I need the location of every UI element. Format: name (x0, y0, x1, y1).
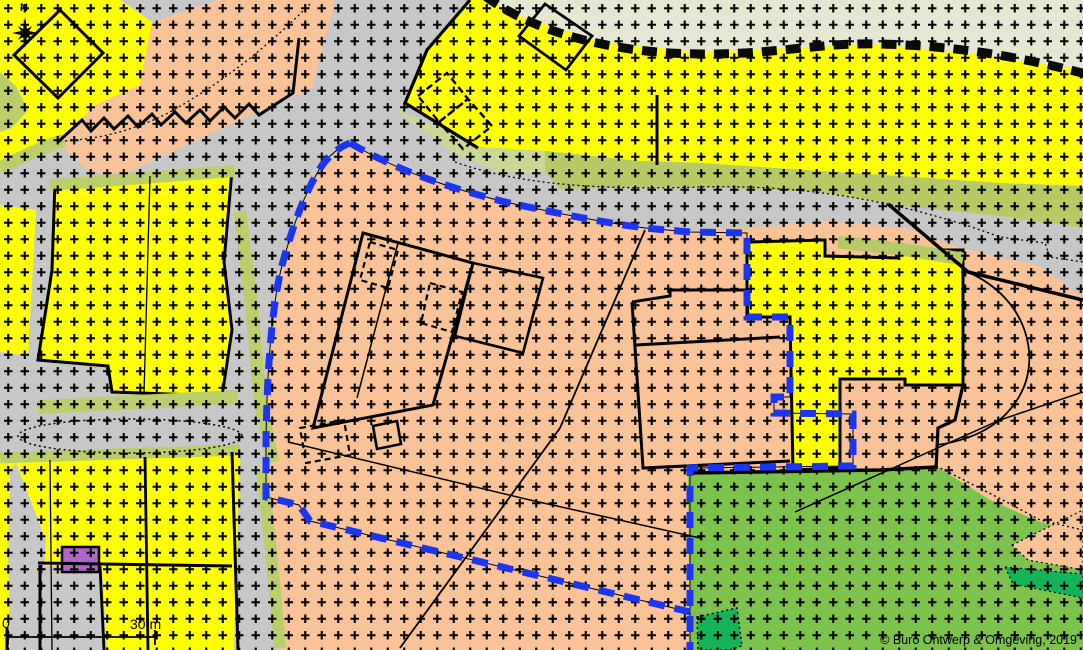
copyright-text: © Buro Ontwerp & Omgeving, 2019 (880, 633, 1077, 647)
scalebar-distance-label: 30 m (130, 616, 161, 632)
map-geometry (0, 0, 1083, 650)
cross-hatch-overlay (0, 0, 1083, 650)
zoning-map-canvas: N 0 30 m © Buro Ontwerp & Omgeving, 2019 (0, 0, 1083, 650)
scalebar-zero-label: 0 (2, 615, 10, 631)
map-viewport: N 0 30 m © Buro Ontwerp & Omgeving, 2019 (0, 0, 1083, 650)
north-label: N (20, 2, 28, 14)
